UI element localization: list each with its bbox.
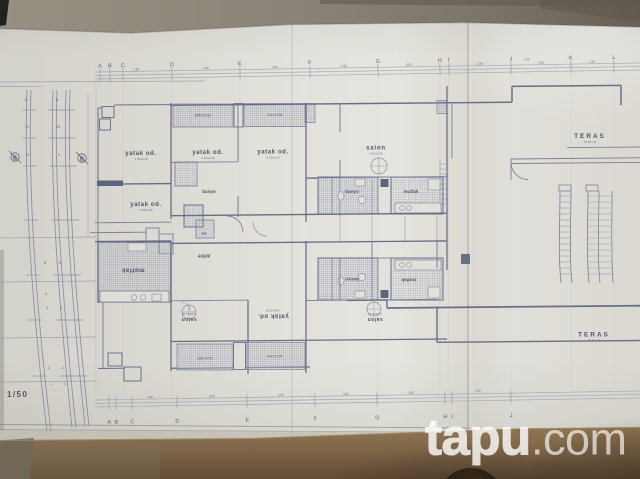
svg-text:tapu: tapu (425, 409, 531, 466)
svg-text:.com: .com (531, 414, 627, 465)
